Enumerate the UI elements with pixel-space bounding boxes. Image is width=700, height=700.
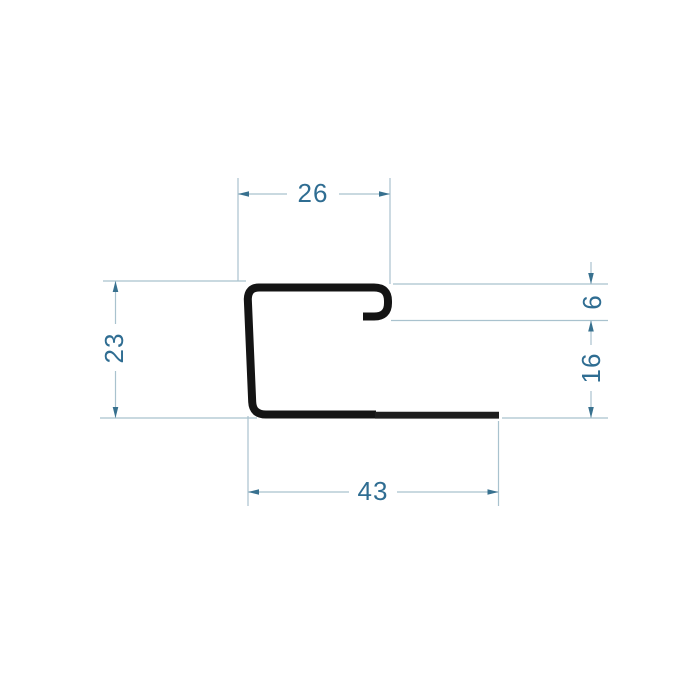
dimension-label-top-width: 26 xyxy=(298,180,329,206)
arrow-left-icon xyxy=(248,489,259,495)
dimension-label-hook-opening: 6 xyxy=(579,294,605,309)
arrow-left-icon xyxy=(238,191,249,197)
dimension-arrows xyxy=(113,191,594,495)
profile-cross-section xyxy=(248,288,388,415)
arrow-up-icon xyxy=(113,281,119,292)
dimension-label-bottom-width: 43 xyxy=(358,478,389,504)
extension-lines xyxy=(100,178,608,506)
arrow-down-icon xyxy=(113,407,119,418)
dimension-label-left-height: 23 xyxy=(101,333,127,364)
dimension-label-right-lower-height: 16 xyxy=(578,353,604,384)
arrow-down-icon xyxy=(588,273,594,284)
arrow-up-icon xyxy=(588,321,594,332)
arrow-right-icon xyxy=(488,489,499,495)
arrow-right-icon xyxy=(379,191,390,197)
arrow-down-icon xyxy=(588,407,594,418)
technical-drawing-canvas: 26 23 6 16 43 xyxy=(0,0,700,700)
dimension-lines xyxy=(116,194,592,492)
